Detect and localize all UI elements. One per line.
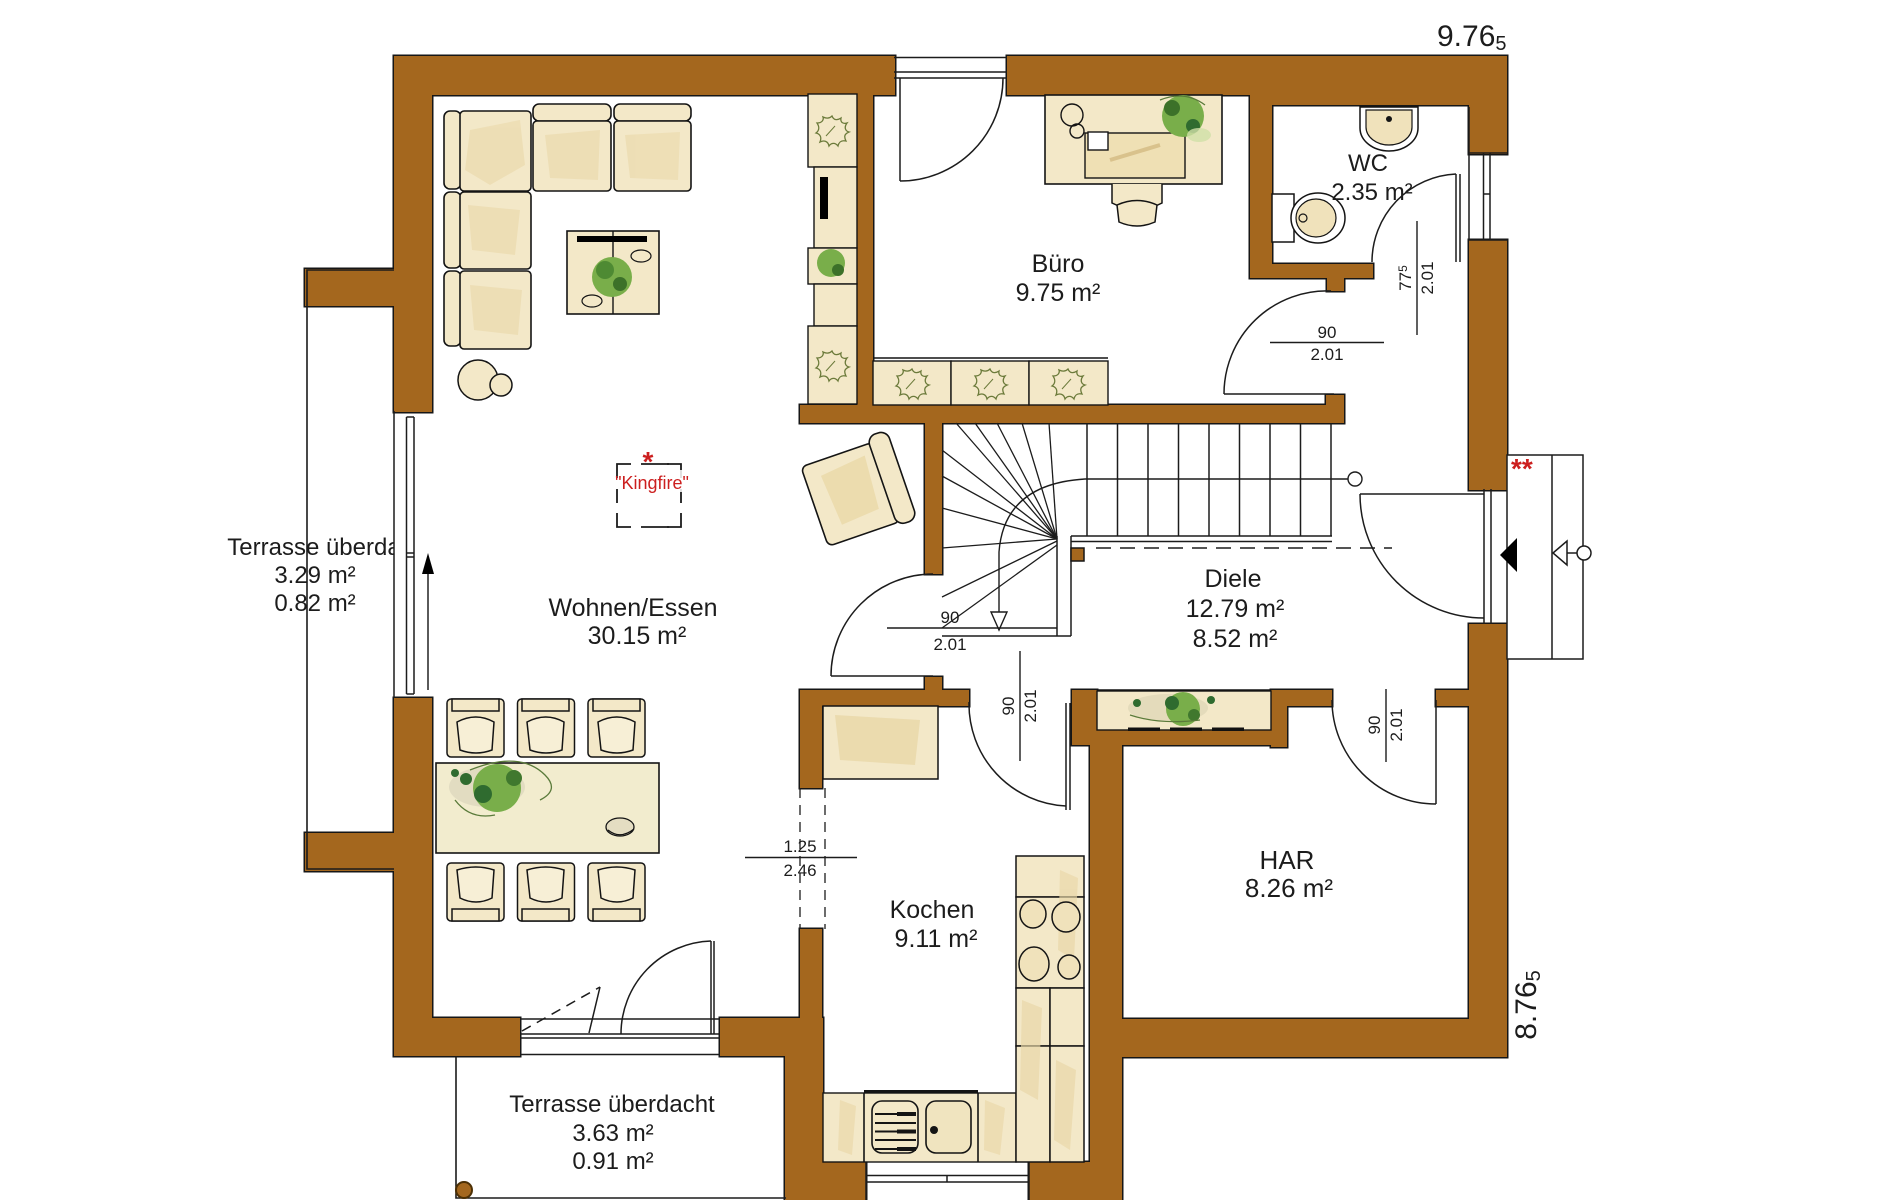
svg-text:Wohnen/Essen: Wohnen/Essen — [548, 594, 717, 622]
svg-text:2.01: 2.01 — [1418, 261, 1437, 294]
svg-text:Kochen: Kochen — [890, 896, 975, 924]
svg-text:2.01: 2.01 — [933, 635, 966, 654]
svg-text:WC: WC — [1348, 150, 1388, 177]
svg-text:Terrasse überdacht: Terrasse überdacht — [509, 1091, 715, 1118]
svg-text:**: ** — [1511, 453, 1533, 484]
svg-text:3.29 m²: 3.29 m² — [274, 562, 355, 589]
svg-text:2.01: 2.01 — [1387, 708, 1406, 741]
svg-text:9.11 m²: 9.11 m² — [895, 925, 978, 953]
svg-text:0.91 m²: 0.91 m² — [572, 1148, 653, 1175]
svg-text:90: 90 — [941, 608, 960, 627]
svg-text:2.35 m²: 2.35 m² — [1331, 179, 1412, 206]
svg-text:"Kingfire": "Kingfire" — [615, 473, 689, 493]
svg-text:Diele: Diele — [1205, 565, 1262, 593]
svg-text:90: 90 — [999, 697, 1018, 716]
svg-text:Büro: Büro — [1032, 250, 1085, 278]
svg-text:30.15 m²: 30.15 m² — [588, 622, 687, 650]
svg-text:2.01: 2.01 — [1021, 689, 1040, 722]
svg-text:90: 90 — [1318, 323, 1337, 342]
svg-text:8.26 m²: 8.26 m² — [1245, 873, 1333, 903]
svg-text:9.75 m²: 9.75 m² — [1016, 279, 1101, 307]
svg-text:8.52 m²: 8.52 m² — [1193, 625, 1278, 653]
svg-text:12.79 m²: 12.79 m² — [1186, 595, 1285, 623]
svg-text:90: 90 — [1365, 716, 1384, 735]
svg-text:0.82 m²: 0.82 m² — [274, 590, 355, 617]
svg-text:HAR: HAR — [1260, 845, 1315, 875]
svg-text:3.63 m²: 3.63 m² — [572, 1120, 653, 1147]
svg-text:2.01: 2.01 — [1310, 345, 1343, 364]
